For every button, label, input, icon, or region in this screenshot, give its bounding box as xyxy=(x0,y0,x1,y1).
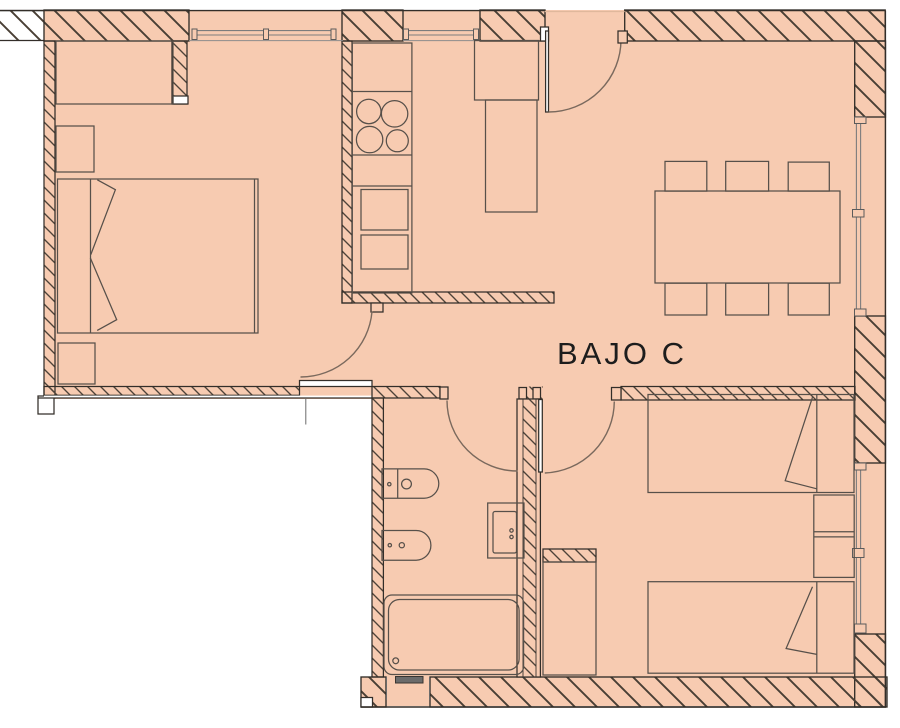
svg-text:BAJO C: BAJO C xyxy=(557,336,687,371)
